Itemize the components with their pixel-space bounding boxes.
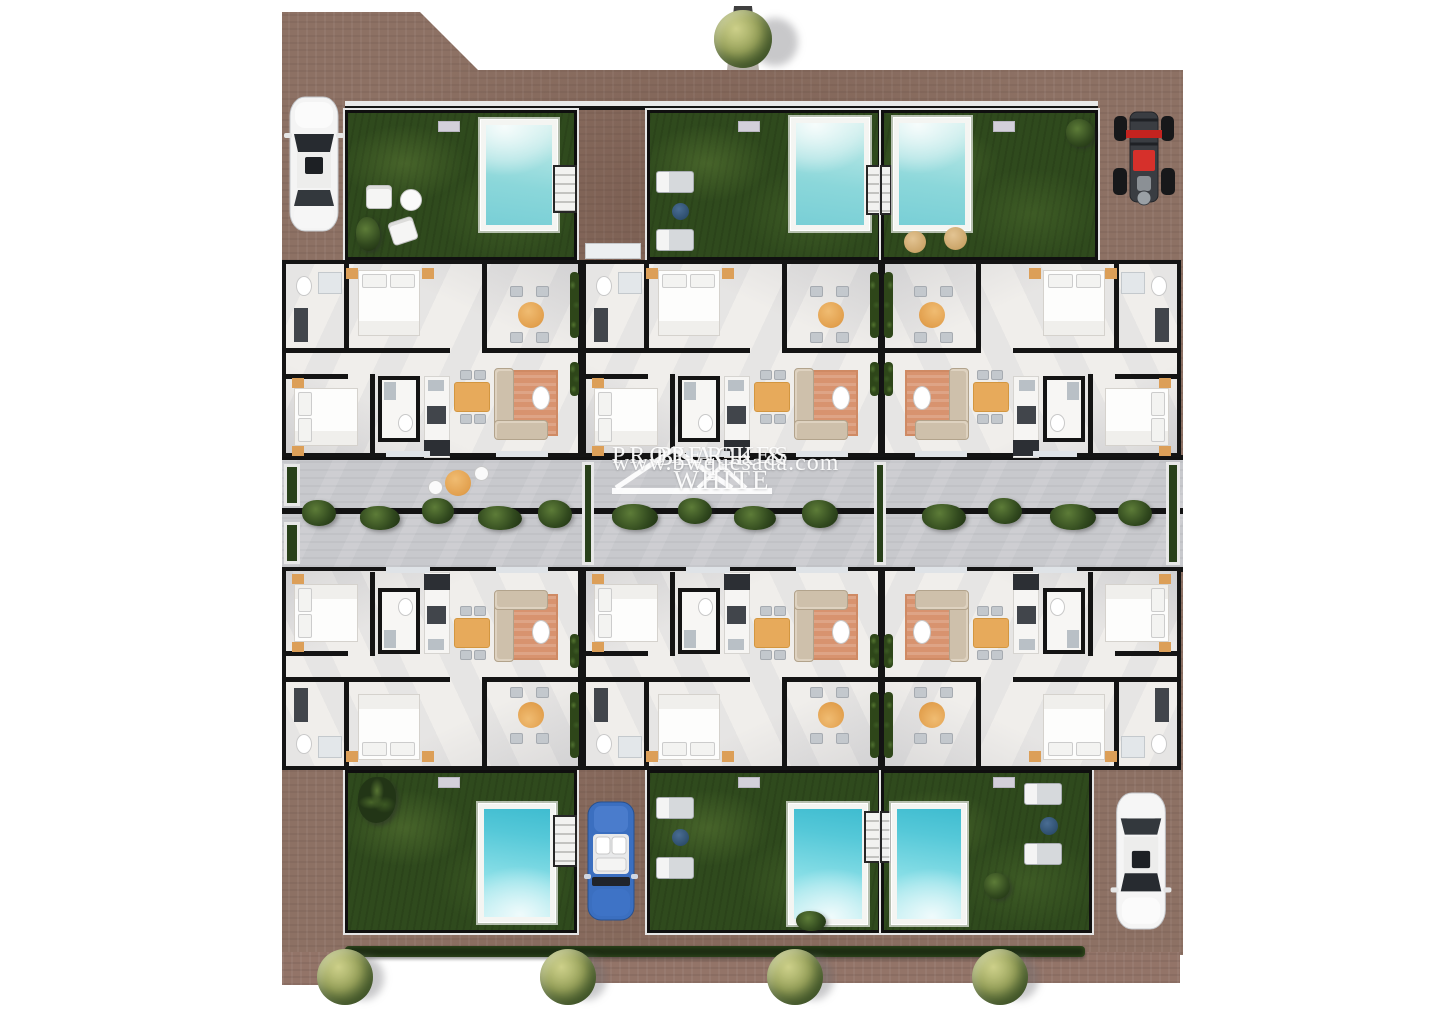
garden-plot-6 (881, 770, 1092, 933)
living-plant (884, 634, 893, 668)
patio-plant (570, 692, 579, 758)
pillow (298, 588, 312, 612)
pillow (598, 418, 612, 442)
hedge-shrub (422, 498, 454, 524)
interior-wall (976, 680, 981, 766)
living-plant (870, 634, 879, 668)
dining-chair (774, 606, 786, 616)
nightstand (422, 268, 434, 279)
oven (1013, 574, 1039, 590)
blue-convertible (584, 800, 638, 922)
dining-chair (760, 370, 772, 380)
dining-chair (760, 414, 772, 424)
nightstand (292, 446, 304, 456)
patio-chair (810, 332, 823, 343)
kitchen-sink (728, 639, 744, 650)
pillow (690, 274, 715, 288)
patio-table (818, 702, 844, 728)
kitchen-sink (428, 380, 444, 391)
patio-chair (940, 733, 953, 744)
pillow (690, 742, 715, 756)
bathroom-cabinet (1155, 308, 1169, 342)
pillow (1151, 588, 1165, 612)
stepping-stone (438, 121, 460, 132)
nightstand (346, 751, 358, 762)
entry-porch (585, 243, 641, 259)
hedge-shrub (302, 500, 336, 526)
pillow (298, 392, 312, 416)
dining-chair (991, 650, 1003, 660)
planter-box (284, 522, 300, 564)
bathroom-cabinet (594, 308, 608, 342)
pool-stairs (553, 815, 577, 867)
patio-table (919, 702, 945, 728)
interior-wall (1088, 572, 1093, 656)
side-table (944, 227, 967, 250)
pool-water (899, 123, 965, 225)
toilet (1151, 276, 1167, 296)
white-car-top (283, 94, 345, 234)
sink (684, 382, 696, 400)
dining-chair (774, 414, 786, 424)
kitchen-sink (1019, 639, 1035, 650)
coffee-table (832, 386, 850, 410)
shower (618, 736, 642, 758)
nightstand (1159, 446, 1171, 456)
swimming-pool (788, 803, 868, 925)
interior-wall (286, 348, 450, 353)
hedge-shrub (1050, 504, 1096, 530)
tree (714, 10, 772, 68)
beach-buggy (1113, 106, 1175, 210)
cooktop (427, 406, 446, 424)
dining-table (754, 618, 790, 648)
sink (684, 630, 696, 648)
patio-chair (836, 332, 849, 343)
garden-plant (356, 217, 380, 251)
pillow (1076, 742, 1101, 756)
interior-wall (586, 348, 750, 353)
interior-wall (782, 264, 787, 350)
nightstand (646, 268, 658, 279)
dining-chair (991, 606, 1003, 616)
bathroom-cabinet (294, 308, 308, 342)
garden-table (400, 189, 422, 211)
patio-table (919, 302, 945, 328)
kitchen-sink (728, 380, 744, 391)
boundary-hedge (345, 946, 1085, 957)
garden-armchair (387, 216, 419, 247)
garden-plot-1 (345, 110, 577, 260)
pool-water (484, 809, 550, 917)
corner-sofa (494, 590, 548, 610)
kitchen-sink (428, 639, 444, 650)
bistro-chair (474, 466, 489, 481)
garden-armchair (366, 185, 392, 209)
glass-door (496, 451, 548, 457)
toilet (398, 414, 413, 432)
interior-wall (482, 264, 487, 350)
garden-boundary-wall (345, 101, 1098, 110)
nightstand (1105, 751, 1117, 762)
swimming-pool (893, 117, 971, 231)
pillow (1048, 274, 1073, 288)
side-table (672, 829, 689, 846)
unit-floorplan-5 (582, 567, 882, 770)
dining-chair (460, 650, 472, 660)
living-plant (570, 362, 579, 396)
patio-chair (510, 332, 523, 343)
dining-chair (977, 370, 989, 380)
stepping-stone (993, 121, 1015, 132)
planter-box (1166, 462, 1180, 565)
planter-box (874, 462, 886, 565)
dining-table (973, 618, 1009, 648)
glass-door (686, 567, 730, 573)
pillow (362, 274, 387, 288)
interior-wall (976, 264, 981, 350)
toilet (296, 734, 312, 754)
toilet (698, 598, 713, 616)
patio-table (518, 302, 544, 328)
patio-chair (510, 733, 523, 744)
pillow (1151, 418, 1165, 442)
pillow (1151, 614, 1165, 638)
sink (1067, 382, 1079, 400)
bistro-chair (428, 480, 443, 495)
pillow (598, 392, 612, 416)
pillow (362, 742, 387, 756)
patio-chair (510, 286, 523, 297)
garden-plant (984, 873, 1010, 899)
dividing-wall (282, 508, 1183, 514)
coffee-table (913, 620, 931, 644)
pillow (1151, 392, 1165, 416)
nightstand (292, 378, 304, 388)
pillow (662, 742, 687, 756)
shower (318, 272, 342, 294)
sink (384, 382, 396, 400)
pool-stairs (880, 165, 892, 215)
patio-chair (810, 733, 823, 744)
corner-sofa (794, 590, 848, 610)
patio-chair (914, 286, 927, 297)
pillow (598, 588, 612, 612)
shower (618, 272, 642, 294)
pillow (390, 274, 415, 288)
living-plant (870, 362, 879, 396)
shower (1121, 736, 1145, 758)
bathroom-cabinet (1155, 688, 1169, 722)
swimming-pool (891, 803, 967, 925)
tree (540, 949, 596, 1005)
shower (318, 736, 342, 758)
hedge-shrub (1118, 500, 1152, 526)
toilet (398, 598, 413, 616)
hedge-shrub (734, 506, 776, 530)
dining-chair (991, 370, 1003, 380)
hedge-shrub (802, 500, 838, 528)
interior-wall (782, 348, 882, 353)
stepping-stone (438, 777, 460, 788)
patio-plant (884, 272, 893, 338)
bistro-table (445, 470, 471, 496)
dining-chair (460, 606, 472, 616)
pool-water (796, 123, 864, 225)
dining-table (454, 382, 490, 412)
nightstand (722, 268, 734, 279)
nightstand (346, 268, 358, 279)
nightstand (1159, 378, 1171, 388)
oven (724, 574, 750, 590)
hedge-shrub (538, 500, 572, 528)
interior-wall (1088, 374, 1093, 458)
white-car-bottom (1110, 790, 1172, 932)
nightstand (1029, 751, 1041, 762)
nightstand (1159, 574, 1171, 584)
hedge-shrub (988, 498, 1022, 524)
dining-chair (991, 414, 1003, 424)
toilet (596, 276, 612, 296)
unit-floorplan-3 (881, 260, 1181, 457)
sun-lounger (656, 171, 694, 193)
sun-lounger (656, 857, 694, 879)
kitchen-sink (1019, 380, 1035, 391)
patio-plant (570, 272, 579, 338)
patio-chair (836, 286, 849, 297)
sun-lounger (656, 229, 694, 251)
corner-sofa (794, 420, 848, 440)
pool-water (794, 809, 862, 919)
unit-floorplan-6 (881, 567, 1181, 770)
garden-plant (1066, 119, 1094, 147)
interior-wall (370, 572, 375, 656)
hedge-shrub (360, 506, 400, 530)
patio-table (518, 702, 544, 728)
patio-chair (940, 286, 953, 297)
patio-chair (536, 286, 549, 297)
nightstand (592, 642, 604, 652)
toilet (698, 414, 713, 432)
watermark-website: www.bwquesada.com (612, 450, 839, 476)
dining-chair (474, 650, 486, 660)
sun-lounger (656, 797, 694, 819)
coffee-table (913, 386, 931, 410)
dining-chair (474, 370, 486, 380)
garden-plot-4 (345, 770, 577, 933)
toilet (1151, 734, 1167, 754)
swimming-pool (480, 119, 558, 231)
pillow (390, 742, 415, 756)
hedge-shrub (922, 504, 966, 530)
interior-wall (1013, 348, 1177, 353)
pool-water (486, 125, 552, 225)
interior-wall (482, 348, 582, 353)
corner-sofa (915, 590, 969, 610)
dining-chair (977, 606, 989, 616)
swimming-pool (790, 117, 870, 231)
unit-floorplan-1 (282, 260, 582, 457)
glass-door (1033, 567, 1077, 573)
pillow (1048, 742, 1073, 756)
nightstand (592, 574, 604, 584)
dining-chair (977, 650, 989, 660)
pillow (662, 274, 687, 288)
garden-plot-5 (647, 770, 881, 933)
interior-wall (586, 677, 750, 682)
garden-plot-3 (881, 110, 1098, 260)
patio-chair (536, 733, 549, 744)
side-table (672, 203, 689, 220)
stepping-stone (993, 777, 1015, 788)
palm-plant (358, 777, 396, 823)
sink (384, 630, 396, 648)
corner-sofa (494, 420, 548, 440)
nightstand (1105, 268, 1117, 279)
patio-chair (914, 733, 927, 744)
glass-door (1033, 451, 1077, 457)
nightstand (1159, 642, 1171, 652)
patio-chair (836, 687, 849, 698)
dining-chair (774, 370, 786, 380)
garden-plant (796, 911, 826, 931)
interior-wall (782, 677, 882, 682)
nightstand (1029, 268, 1041, 279)
patio-plant (884, 692, 893, 758)
dining-chair (474, 606, 486, 616)
cooktop (427, 606, 446, 624)
interior-wall (286, 677, 450, 682)
dining-chair (977, 414, 989, 424)
hedge-shrub (678, 498, 712, 524)
pool-water (897, 809, 961, 919)
glass-door (386, 451, 430, 457)
pillow (298, 614, 312, 638)
bathroom-cabinet (594, 688, 608, 722)
living-plant (884, 362, 893, 396)
patio-chair (810, 286, 823, 297)
toilet (1050, 598, 1065, 616)
nightstand (592, 378, 604, 388)
cooktop (1017, 406, 1036, 424)
glass-door (915, 567, 967, 573)
dining-chair (760, 606, 772, 616)
patio-chair (510, 687, 523, 698)
stepping-stone (738, 777, 760, 788)
nightstand (292, 574, 304, 584)
planter-box (284, 464, 300, 506)
pillow (598, 614, 612, 638)
patio-chair (536, 687, 549, 698)
patio-table (818, 302, 844, 328)
corner-sofa (915, 420, 969, 440)
patio-chair (836, 733, 849, 744)
oven (424, 574, 450, 590)
sink (1067, 630, 1079, 648)
sun-lounger (1024, 843, 1062, 865)
patio-plant (870, 272, 879, 338)
shower (1121, 272, 1145, 294)
living-plant (570, 634, 579, 668)
cooktop (727, 406, 746, 424)
interior-wall (881, 348, 981, 353)
coffee-table (532, 620, 550, 644)
wicker-chair (904, 231, 926, 253)
dining-table (454, 618, 490, 648)
interior-wall (881, 677, 981, 682)
patio-chair (940, 332, 953, 343)
cooktop (727, 606, 746, 624)
site-plan-render: BLACK & WHITE PROPERTIES www.bwquesada.c… (0, 0, 1440, 1024)
pool-stairs (553, 165, 577, 213)
toilet (1050, 414, 1065, 432)
garden-plot-2 (647, 110, 881, 260)
bathroom-cabinet (294, 688, 308, 722)
dining-chair (474, 414, 486, 424)
glass-door (496, 567, 548, 573)
glass-door (915, 451, 967, 457)
tree (972, 949, 1028, 1005)
sun-lounger (1024, 783, 1062, 805)
interior-wall (782, 680, 787, 766)
pillow (298, 418, 312, 442)
nightstand (592, 446, 604, 456)
dining-table (973, 382, 1009, 412)
nightstand (646, 751, 658, 762)
cooktop (1017, 606, 1036, 624)
patio-chair (810, 687, 823, 698)
stepping-stone (738, 121, 760, 132)
unit-floorplan-4 (282, 567, 582, 770)
patio-chair (536, 332, 549, 343)
patio-chair (914, 332, 927, 343)
hedge-shrub (478, 506, 522, 530)
dining-chair (774, 650, 786, 660)
glass-door (386, 567, 430, 573)
patio-chair (940, 687, 953, 698)
nightstand (292, 642, 304, 652)
dining-table (754, 382, 790, 412)
interior-wall (482, 680, 487, 766)
patio-plant (870, 692, 879, 758)
tree (317, 949, 373, 1005)
dining-chair (460, 414, 472, 424)
toilet (296, 276, 312, 296)
swimming-pool (478, 803, 556, 923)
side-table (1040, 817, 1058, 835)
coffee-table (532, 386, 550, 410)
dining-chair (460, 370, 472, 380)
hedge-shrub (612, 504, 658, 530)
interior-wall (370, 374, 375, 458)
interior-wall (482, 677, 582, 682)
planter-box (582, 462, 594, 565)
toilet (596, 734, 612, 754)
unit-floorplan-2 (582, 260, 882, 457)
dining-chair (760, 650, 772, 660)
nightstand (422, 751, 434, 762)
interior-wall (1013, 677, 1177, 682)
tree (767, 949, 823, 1005)
interior-wall (670, 572, 675, 656)
nightstand (722, 751, 734, 762)
patio-chair (914, 687, 927, 698)
glass-door (796, 567, 848, 573)
coffee-table (832, 620, 850, 644)
pillow (1076, 274, 1101, 288)
